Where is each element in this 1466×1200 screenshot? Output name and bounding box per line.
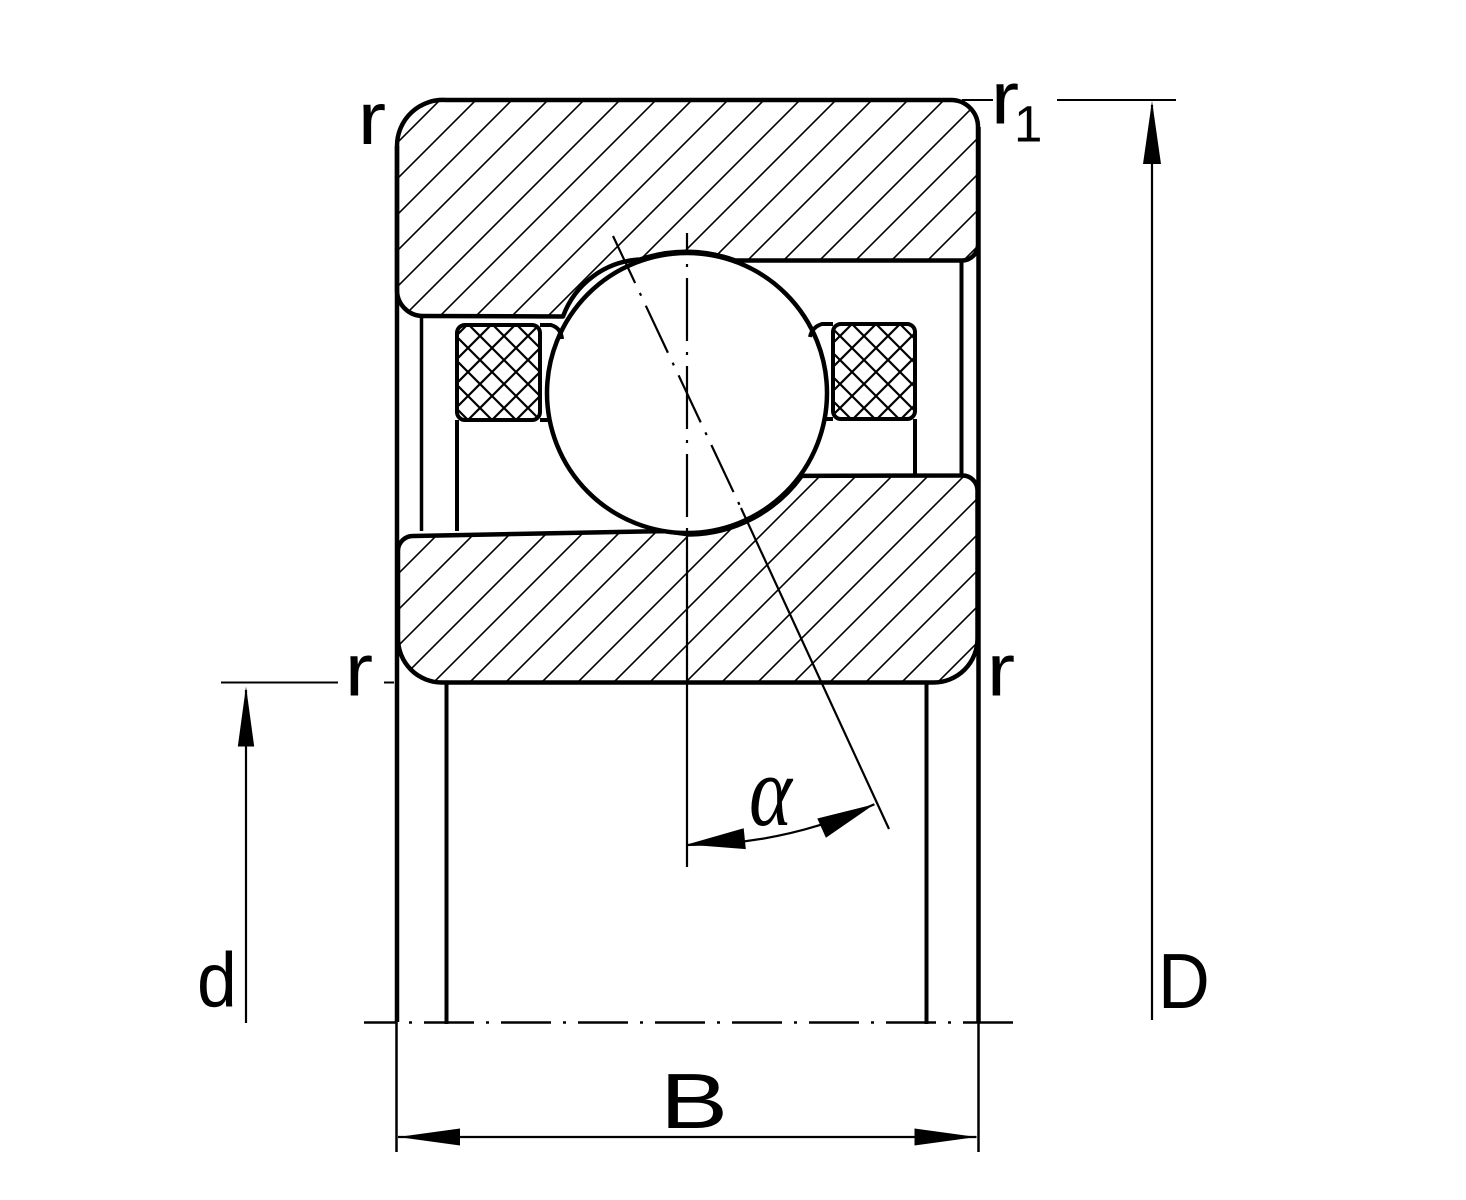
svg-text:r: r bbox=[345, 629, 373, 712]
svg-text:D: D bbox=[1158, 937, 1210, 1024]
svg-text:B: B bbox=[660, 1058, 728, 1145]
svg-text:1: 1 bbox=[1014, 96, 1042, 153]
svg-text:r: r bbox=[987, 629, 1015, 712]
svg-text:d: d bbox=[197, 937, 237, 1023]
svg-text:α: α bbox=[749, 735, 794, 847]
svg-text:r: r bbox=[358, 77, 386, 160]
